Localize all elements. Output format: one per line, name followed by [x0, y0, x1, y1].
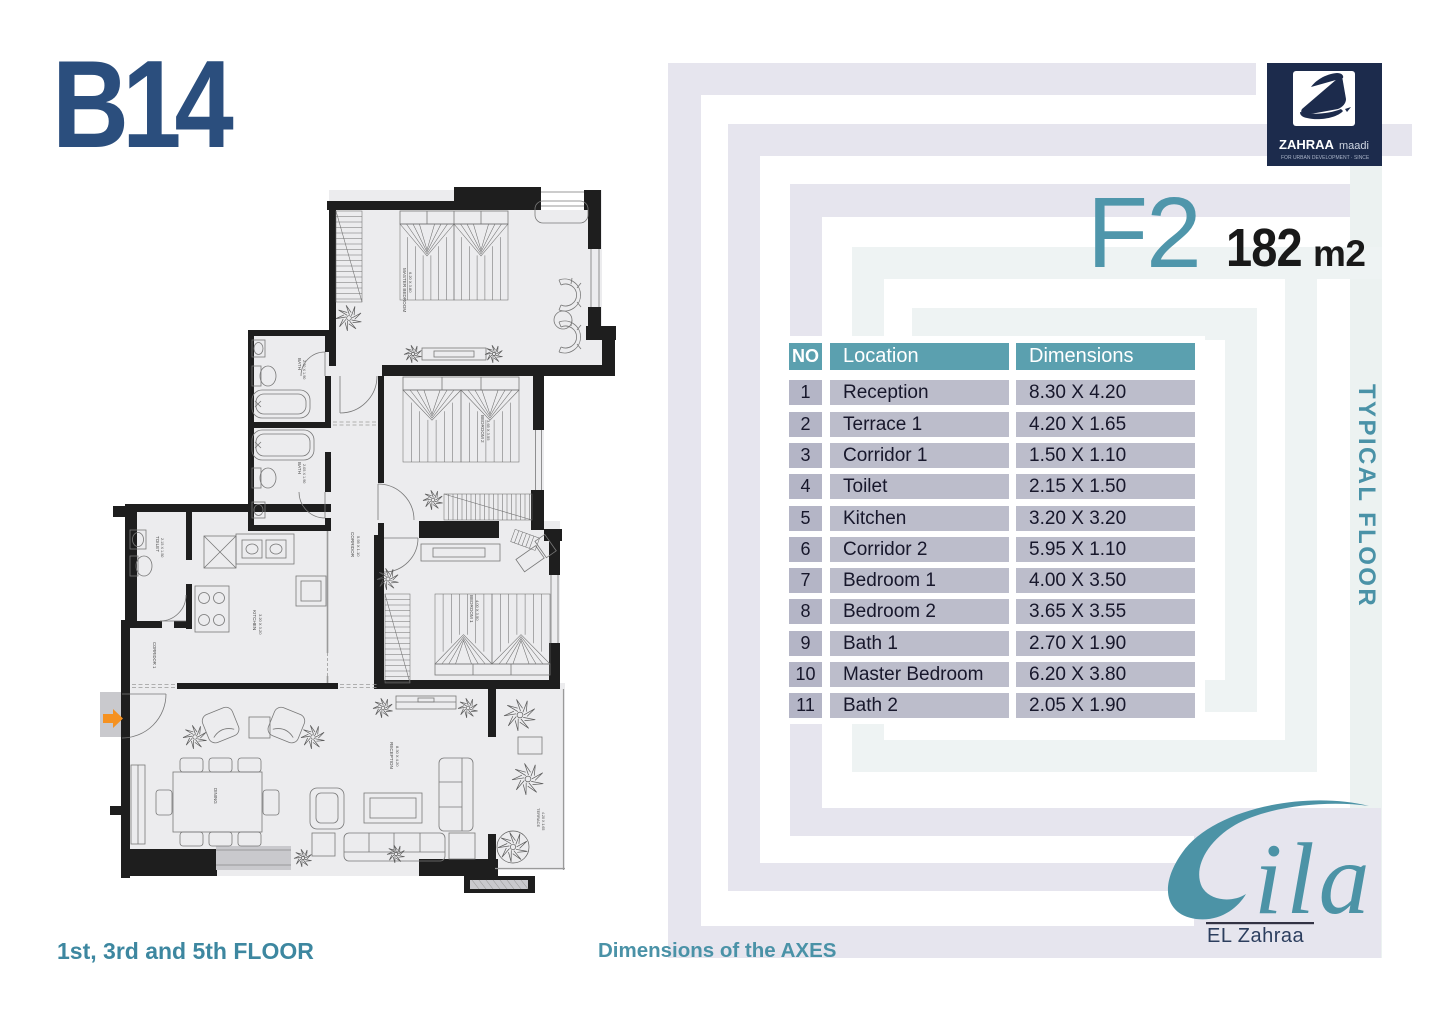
svg-text:3.20 X 3.20: 3.20 X 3.20 — [258, 614, 263, 635]
svg-text:6.20 X 3.80: 6.20 X 3.80 — [408, 272, 413, 293]
svg-text:maadi: maadi — [1339, 140, 1369, 152]
svg-text:8.30 X 4.20: 8.30 X 4.20 — [395, 746, 400, 767]
svg-text:BATH: BATH — [297, 462, 302, 474]
svg-text:5.95 X 1.10: 5.95 X 1.10 — [356, 536, 361, 557]
svg-text:CORRIDOR: CORRIDOR — [350, 532, 355, 558]
svg-text:4.00 X 3.50: 4.00 X 3.50 — [475, 600, 480, 621]
svg-text:2.05 X 1.90: 2.05 X 1.90 — [302, 464, 306, 483]
svg-text:ila: ila — [1254, 823, 1374, 936]
svg-text:TOILET: TOILET — [155, 536, 160, 552]
svg-text:EL Zahraa: EL Zahraa — [1207, 925, 1305, 947]
svg-text:ZAHRAA: ZAHRAA — [1279, 137, 1334, 152]
svg-text:RECEPTION: RECEPTION — [389, 742, 394, 769]
svg-text:BEDROOM 2: BEDROOM 2 — [480, 415, 485, 443]
svg-text:3.65 X 3.55: 3.65 X 3.55 — [486, 420, 491, 441]
svg-text:CORRIDOR 1: CORRIDOR 1 — [152, 642, 157, 669]
svg-text:BEDROOM 1: BEDROOM 1 — [469, 595, 474, 623]
svg-text:2.15 X 1.50: 2.15 X 1.50 — [160, 538, 164, 557]
svg-text:KITCHEN: KITCHEN — [252, 610, 257, 630]
svg-text:2.70 X 1.90: 2.70 X 1.90 — [302, 360, 306, 379]
svg-text:FOR URBAN DEVELOPMENT · SINCE: FOR URBAN DEVELOPMENT · SINCE — [1281, 155, 1370, 161]
svg-text:DINING: DINING — [213, 788, 218, 804]
svg-text:BATH: BATH — [297, 358, 302, 370]
svg-text:4.20 X 1.65: 4.20 X 1.65 — [541, 812, 545, 830]
svg-text:MASTER BEDROOM: MASTER BEDROOM — [402, 268, 407, 312]
svg-text:TERRACE: TERRACE — [536, 808, 541, 827]
